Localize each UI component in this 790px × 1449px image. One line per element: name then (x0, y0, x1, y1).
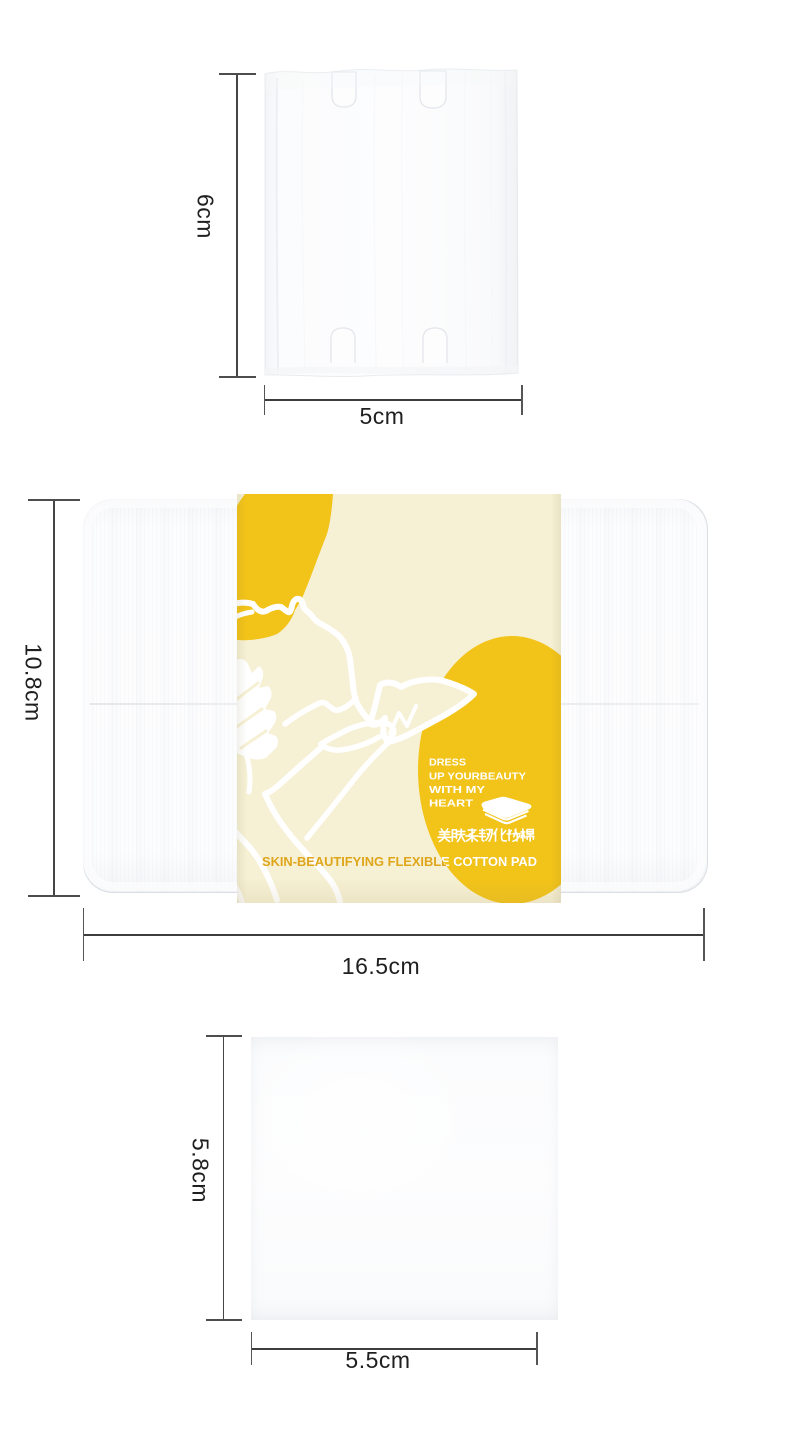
svg-text:DRESS: DRESS (429, 757, 466, 769)
svg-text:HEART: HEART (429, 798, 474, 810)
svg-text:UP YOURBEAUTY: UP YOURBEAUTY (429, 770, 526, 782)
svg-text:WITH MY: WITH MY (429, 784, 485, 796)
